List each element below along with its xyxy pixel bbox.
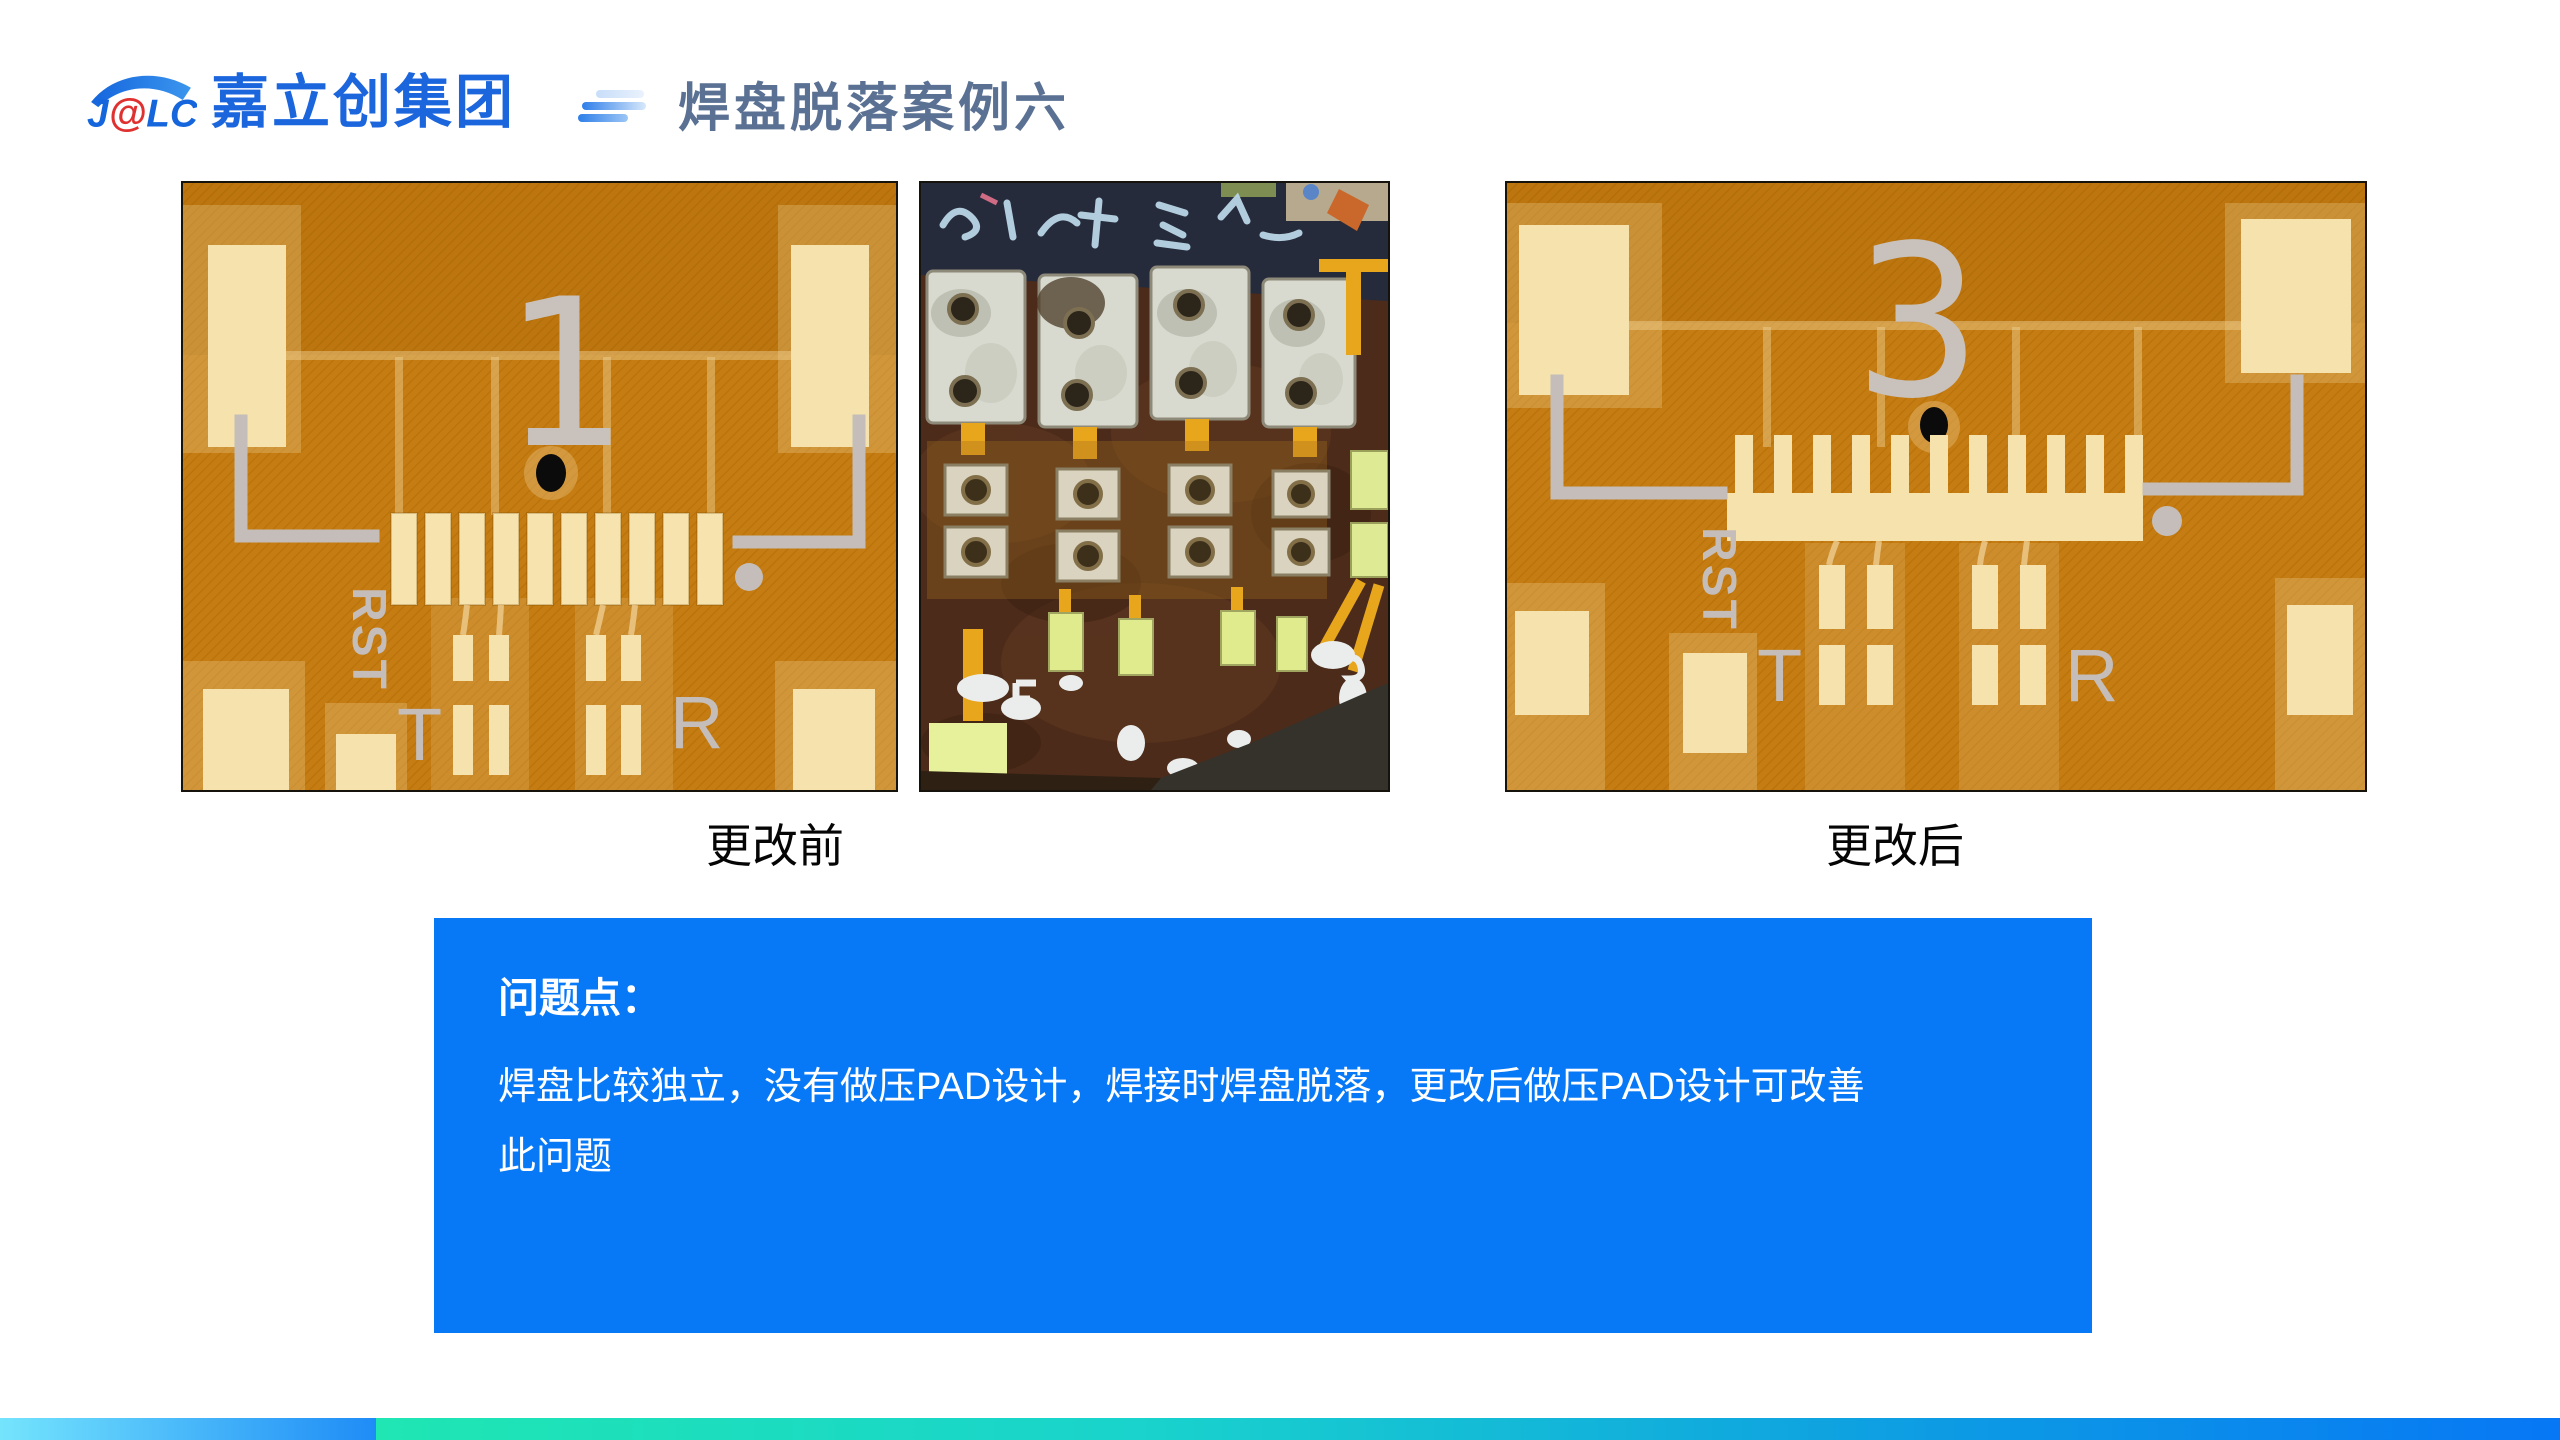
before-board-drawing: 1 [183,183,896,790]
silkscreen-rst: RST [342,587,395,692]
silkscreen-dot [2152,506,2182,536]
after-board-drawing: 3 [1507,183,2365,790]
speed-line [582,102,646,110]
page-title: 焊盘脱落案例六 [678,66,1070,141]
speed-line [578,114,628,122]
silkscreen-t: T [397,693,442,776]
issue-info-box: 问题点： 焊盘比较独立，没有做压PAD设计，焊接时焊盘脱落，更改后做压PAD设计… [434,918,2092,1333]
footer-bar-right [376,1418,2560,1440]
silkscreen-r: R [670,681,723,764]
silkscreen-rst: RST [1692,527,1745,632]
after-board-image: 3 [1505,181,2367,792]
caption-after: 更改后 [1685,810,2105,876]
jlc-logo-icon: J@LC [85,69,197,133]
company-name: 嘉立创集团 [211,55,516,139]
footer-bar-left [0,1418,376,1440]
slide: J@LC 嘉立创集团 焊盘脱落案例六 [0,0,2560,1440]
silkscreen-dot [735,563,763,591]
before-board-image: 1 [181,181,898,792]
board-number: 1 [501,256,624,494]
photo-drawing [921,183,1388,790]
silkscreen-r: R [2065,634,2118,717]
speed-lines-icon [578,90,656,130]
damaged-board-photo [919,181,1390,792]
issue-heading: 问题点： [498,964,2028,1024]
header: J@LC 嘉立创集团 焊盘脱落案例六 [85,52,1070,141]
issue-body-line2: 此问题 [498,1122,2028,1192]
caption-before: 更改前 [565,810,985,876]
issue-body-line1: 焊盘比较独立，没有做压PAD设计，焊接时焊盘脱落，更改后做压PAD设计可改善 [498,1052,2028,1122]
logo-text: J@LC [87,92,197,133]
board-number: 3 [1855,200,1981,445]
silkscreen-t: T [1757,634,1802,717]
speed-line [596,90,644,98]
